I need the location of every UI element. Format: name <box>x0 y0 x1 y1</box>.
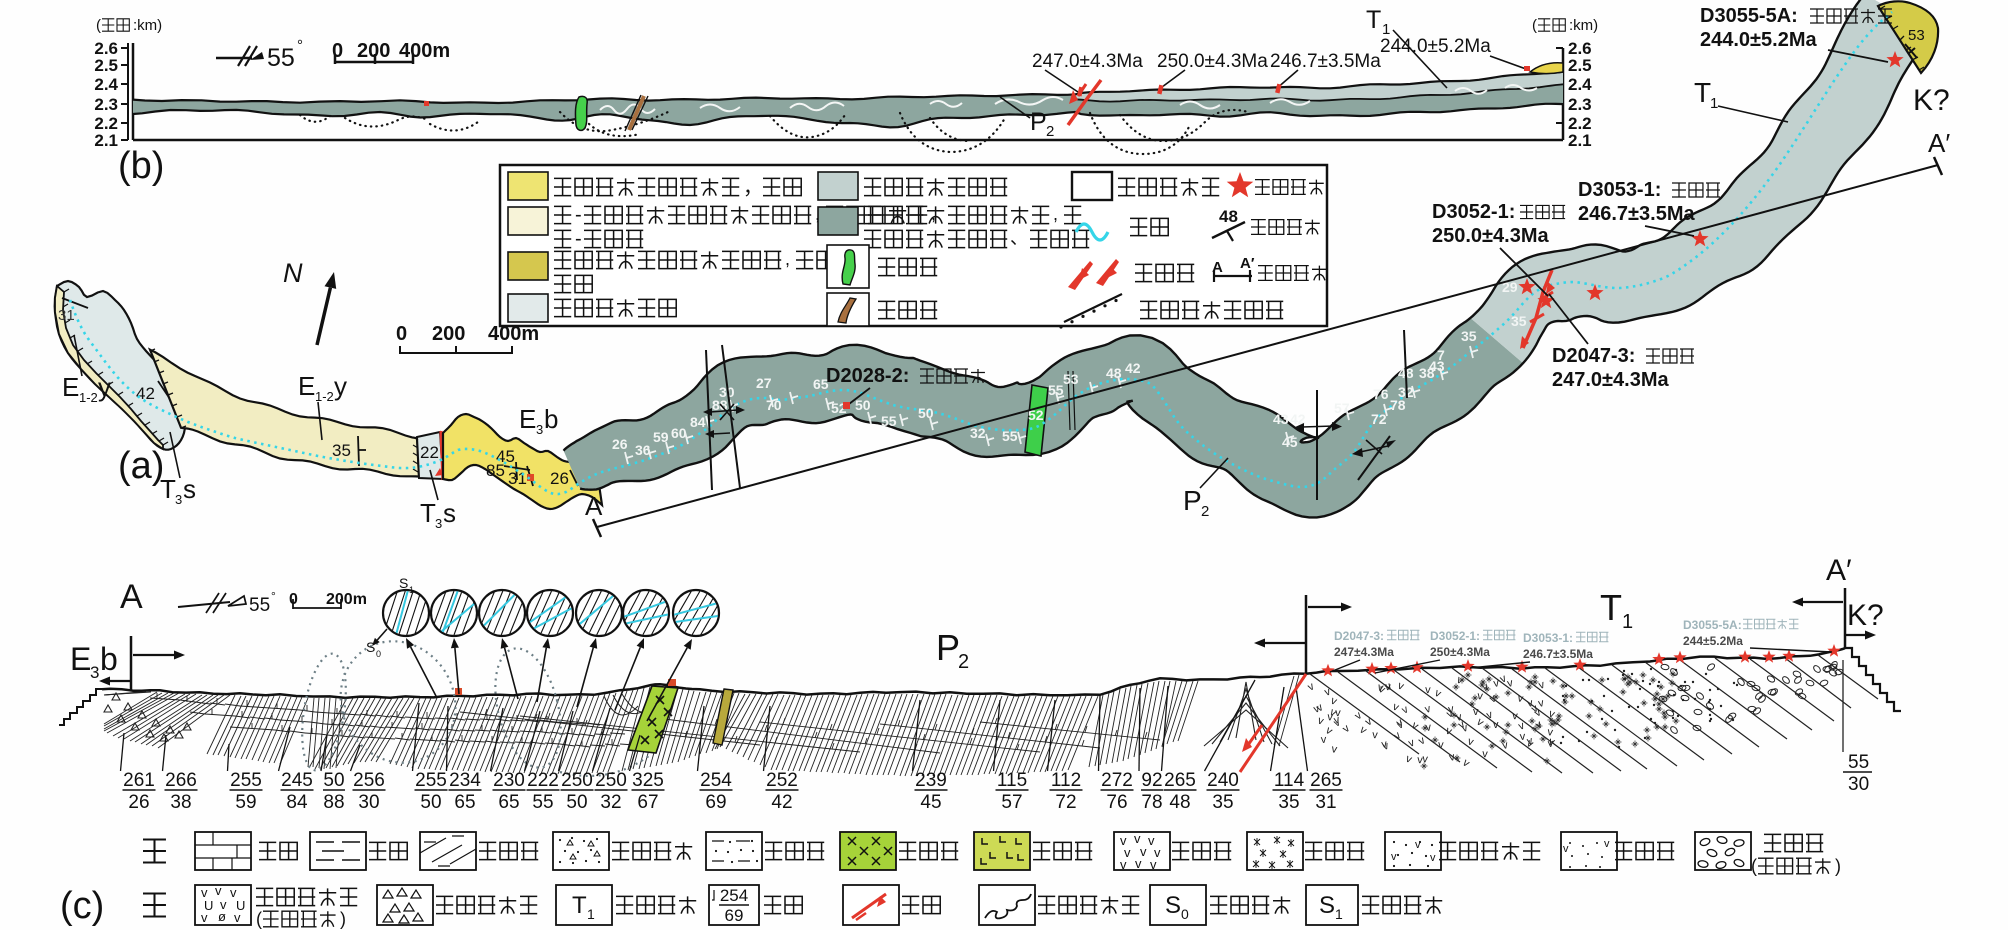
svg-text:2.1: 2.1 <box>94 131 118 150</box>
svg-text:35: 35 <box>332 441 351 460</box>
svg-text:244±5.2Ma: 244±5.2Ma <box>1683 634 1743 648</box>
svg-text:v: v <box>1438 739 1444 751</box>
svg-text:1: 1 <box>1710 95 1718 112</box>
svg-text:72: 72 <box>1371 411 1387 427</box>
svg-text:32: 32 <box>600 792 621 813</box>
svg-text:A: A <box>120 578 143 616</box>
svg-text:E: E <box>70 641 91 677</box>
svg-text:3: 3 <box>90 663 99 682</box>
svg-text:245: 245 <box>281 770 313 791</box>
svg-text:D3055-5A:: D3055-5A: <box>1700 5 1798 27</box>
svg-text:v: v <box>1135 856 1142 871</box>
svg-text:A: A <box>585 491 603 521</box>
svg-text:252: 252 <box>766 770 798 791</box>
svg-text:69: 69 <box>725 906 744 925</box>
svg-text:22: 22 <box>420 443 439 462</box>
svg-text:255: 255 <box>415 770 447 791</box>
svg-text:A′: A′ <box>1240 255 1255 272</box>
svg-text:38: 38 <box>170 792 191 813</box>
svg-text:50: 50 <box>420 792 441 813</box>
svg-text:55: 55 <box>249 595 270 616</box>
svg-text:0: 0 <box>332 40 343 62</box>
svg-text:256: 256 <box>353 770 385 791</box>
svg-text:A′: A′ <box>1826 554 1852 587</box>
svg-text:255: 255 <box>230 770 262 791</box>
svg-text:D2047-3:: D2047-3: <box>1334 629 1384 643</box>
svg-text:247.0±4.3Ma: 247.0±4.3Ma <box>1552 369 1669 391</box>
svg-text:v: v <box>1415 839 1421 851</box>
svg-text:35: 35 <box>1511 313 1527 329</box>
svg-text:32: 32 <box>970 425 986 441</box>
svg-text:246.7±3.5Ma: 246.7±3.5Ma <box>1578 203 1695 225</box>
svg-text:D2028-2:: D2028-2: <box>826 365 909 387</box>
svg-text:76: 76 <box>1106 792 1127 813</box>
svg-text:239: 239 <box>915 770 947 791</box>
svg-text:84: 84 <box>690 414 706 430</box>
svg-text:S: S <box>1165 892 1181 919</box>
svg-text:254: 254 <box>720 886 748 905</box>
svg-text:112: 112 <box>1051 770 1081 791</box>
svg-text:P: P <box>936 627 960 668</box>
svg-text:v: v <box>1425 684 1431 696</box>
svg-text:K?: K? <box>1847 599 1884 632</box>
svg-text:246.7±3.5Ma: 246.7±3.5Ma <box>1270 51 1381 72</box>
svg-text::km): :km) <box>133 17 162 34</box>
svg-text:230: 230 <box>493 770 525 791</box>
svg-text:114: 114 <box>1274 770 1305 791</box>
svg-text:2.3: 2.3 <box>1568 95 1592 114</box>
svg-text:A′: A′ <box>1928 128 1950 158</box>
svg-text:200m: 200m <box>326 591 367 608</box>
svg-text:65: 65 <box>454 792 475 813</box>
svg-text:D3053-1:: D3053-1: <box>1523 631 1573 645</box>
svg-text:48: 48 <box>1219 207 1238 226</box>
svg-text:v: v <box>1391 851 1397 863</box>
svg-text:v: v <box>1493 719 1499 731</box>
svg-text:,: , <box>1053 204 1058 224</box>
svg-text:234: 234 <box>449 770 481 791</box>
svg-text:E: E <box>62 372 79 402</box>
svg-text:76: 76 <box>1373 386 1389 402</box>
svg-text:250.0±4.3Ma: 250.0±4.3Ma <box>1157 51 1268 72</box>
svg-text:50: 50 <box>323 770 344 791</box>
svg-text:1: 1 <box>409 585 414 595</box>
svg-text:K?: K? <box>1913 84 1950 117</box>
svg-text:115: 115 <box>997 770 1027 791</box>
svg-text:°: ° <box>297 37 303 54</box>
svg-text:(: ( <box>96 17 101 34</box>
svg-text:2.5: 2.5 <box>94 56 118 75</box>
svg-text:2.3: 2.3 <box>94 95 118 114</box>
svg-text:400m: 400m <box>399 40 450 62</box>
svg-text:53: 53 <box>1063 371 1079 387</box>
svg-text::km): :km) <box>1569 17 1598 34</box>
svg-text:1: 1 <box>1622 611 1633 633</box>
svg-text:°: ° <box>271 589 276 603</box>
svg-text:27: 27 <box>756 375 772 391</box>
svg-text:35: 35 <box>1461 328 1477 344</box>
svg-text:D2047-3:: D2047-3: <box>1552 345 1635 367</box>
svg-text:0: 0 <box>396 323 407 345</box>
svg-text:45: 45 <box>920 792 941 813</box>
svg-text:53: 53 <box>1908 27 1925 44</box>
svg-text:35: 35 <box>1278 792 1299 813</box>
svg-text:): ) <box>1835 856 1841 876</box>
svg-text:222: 222 <box>527 770 559 791</box>
svg-text:246.7±3.5Ma: 246.7±3.5Ma <box>1523 647 1593 661</box>
svg-text:，: ， <box>743 177 763 199</box>
svg-text:S: S <box>1319 892 1335 919</box>
svg-text:v: v <box>1563 843 1569 855</box>
svg-text:84: 84 <box>286 792 308 813</box>
svg-text:y: y <box>98 372 111 402</box>
svg-text:42: 42 <box>771 792 792 813</box>
svg-text:69: 69 <box>705 792 726 813</box>
svg-text:1: 1 <box>1382 21 1390 38</box>
svg-text:0: 0 <box>1181 906 1189 922</box>
svg-text:50: 50 <box>855 397 871 413</box>
svg-text:265: 265 <box>1310 770 1342 791</box>
svg-text:50: 50 <box>566 792 587 813</box>
svg-text:244.0±5.2Ma: 244.0±5.2Ma <box>1700 29 1817 51</box>
svg-text:43: 43 <box>1273 411 1289 427</box>
svg-text:250.0±4.3Ma: 250.0±4.3Ma <box>1432 225 1549 247</box>
svg-text:T: T <box>572 892 587 919</box>
svg-text:2.5: 2.5 <box>1568 56 1592 75</box>
svg-text:T: T <box>1694 77 1711 108</box>
svg-text:v: v <box>234 910 241 925</box>
svg-text:(: ( <box>1751 856 1757 876</box>
svg-text:(: ( <box>256 909 262 929</box>
svg-text:P: P <box>1183 485 1202 516</box>
svg-text:E: E <box>298 371 315 401</box>
svg-text:26: 26 <box>128 792 149 813</box>
svg-text:v: v <box>1473 706 1479 718</box>
svg-text:272: 272 <box>1101 770 1133 791</box>
svg-text:b: b <box>100 641 118 677</box>
svg-text:400m: 400m <box>488 323 539 345</box>
svg-text:(a): (a) <box>118 445 164 487</box>
svg-text:261: 261 <box>123 770 155 791</box>
svg-text:92: 92 <box>1141 770 1162 791</box>
svg-text:-: - <box>575 228 582 250</box>
svg-text:48: 48 <box>1169 792 1190 813</box>
svg-text:30: 30 <box>1848 774 1869 795</box>
svg-text:,: , <box>785 249 790 269</box>
svg-text:S: S <box>399 575 408 591</box>
svg-text:3: 3 <box>536 422 543 437</box>
svg-text:1-2: 1-2 <box>315 389 334 404</box>
svg-text:2.1: 2.1 <box>1568 131 1592 150</box>
svg-text:v: v <box>1150 857 1157 872</box>
svg-text:D3053-1:: D3053-1: <box>1578 179 1661 201</box>
svg-text:265: 265 <box>1164 770 1196 791</box>
svg-text:(b): (b) <box>118 145 164 187</box>
svg-text:250: 250 <box>561 770 593 791</box>
svg-text:(c): (c) <box>60 885 104 927</box>
svg-text:31: 31 <box>1315 792 1336 813</box>
svg-text:240: 240 <box>1207 770 1239 791</box>
svg-text:1-2: 1-2 <box>79 390 98 405</box>
svg-text:325: 325 <box>632 770 664 791</box>
svg-text:2.4: 2.4 <box>94 75 118 94</box>
svg-text:3: 3 <box>175 492 182 507</box>
svg-text:P: P <box>1030 108 1047 136</box>
svg-text:(: ( <box>1532 17 1537 34</box>
svg-text:26: 26 <box>612 436 628 452</box>
svg-text:247.0±4.3Ma: 247.0±4.3Ma <box>1032 51 1143 72</box>
svg-text:35: 35 <box>1212 792 1233 813</box>
svg-text:D3052-1:: D3052-1: <box>1430 629 1480 643</box>
svg-text:72: 72 <box>1055 792 1076 813</box>
svg-text:88: 88 <box>323 792 344 813</box>
svg-text:55: 55 <box>267 44 295 72</box>
svg-text:85: 85 <box>486 461 505 480</box>
svg-text:、: 、 <box>1010 228 1028 248</box>
svg-text:244.0±5.2Ma: 244.0±5.2Ma <box>1380 36 1491 57</box>
svg-text:N: N <box>283 258 303 288</box>
svg-text:2.4: 2.4 <box>1568 75 1592 94</box>
svg-text:250: 250 <box>595 770 627 791</box>
svg-text:55: 55 <box>532 792 553 813</box>
svg-text:59: 59 <box>235 792 256 813</box>
svg-text:): ) <box>340 909 346 929</box>
svg-text:65: 65 <box>498 792 519 813</box>
svg-text:42: 42 <box>1125 360 1141 376</box>
svg-text:200: 200 <box>432 323 465 345</box>
svg-text:D3052-1:: D3052-1: <box>1432 201 1515 223</box>
svg-text:247±4.3Ma: 247±4.3Ma <box>1334 645 1394 659</box>
svg-text:v: v <box>201 910 208 925</box>
svg-text:s: s <box>443 498 456 528</box>
svg-text:30: 30 <box>358 792 379 813</box>
svg-text:s: s <box>183 474 196 504</box>
svg-text:55: 55 <box>1002 428 1018 444</box>
svg-text:v: v <box>215 883 222 898</box>
svg-text:26: 26 <box>550 469 569 488</box>
svg-text:55: 55 <box>1848 752 1869 773</box>
svg-text:55: 55 <box>881 413 897 429</box>
svg-text:254: 254 <box>700 770 732 791</box>
svg-text:1: 1 <box>1335 906 1343 922</box>
svg-text:3: 3 <box>435 516 442 531</box>
svg-text:55: 55 <box>1048 382 1064 398</box>
svg-text:78: 78 <box>1141 792 1162 813</box>
svg-text:ø: ø <box>218 909 226 924</box>
svg-text:57: 57 <box>1001 792 1022 813</box>
svg-text:T: T <box>420 498 436 528</box>
svg-text:7: 7 <box>1437 347 1445 363</box>
svg-text:2: 2 <box>1046 123 1054 140</box>
svg-text:v: v <box>1604 838 1610 850</box>
svg-text:v: v <box>1430 852 1436 864</box>
svg-text:50: 50 <box>918 405 934 421</box>
svg-text:v: v <box>1120 857 1127 872</box>
svg-text:200: 200 <box>357 40 390 62</box>
svg-text:2: 2 <box>958 651 969 673</box>
svg-text:67: 67 <box>637 792 658 813</box>
svg-text:31: 31 <box>58 307 75 324</box>
svg-text:T: T <box>1600 587 1622 628</box>
svg-text:266: 266 <box>165 770 197 791</box>
svg-text:1: 1 <box>587 906 595 922</box>
svg-text:-: - <box>575 204 582 226</box>
svg-text:2: 2 <box>1201 503 1209 520</box>
svg-text:E: E <box>519 404 536 434</box>
svg-text:250±4.3Ma: 250±4.3Ma <box>1430 645 1490 659</box>
svg-text:b: b <box>544 404 558 434</box>
svg-text:y: y <box>334 371 347 401</box>
svg-text:0: 0 <box>376 649 381 659</box>
svg-text:D3055-5A:: D3055-5A: <box>1683 618 1742 632</box>
svg-text:T: T <box>1366 6 1381 34</box>
